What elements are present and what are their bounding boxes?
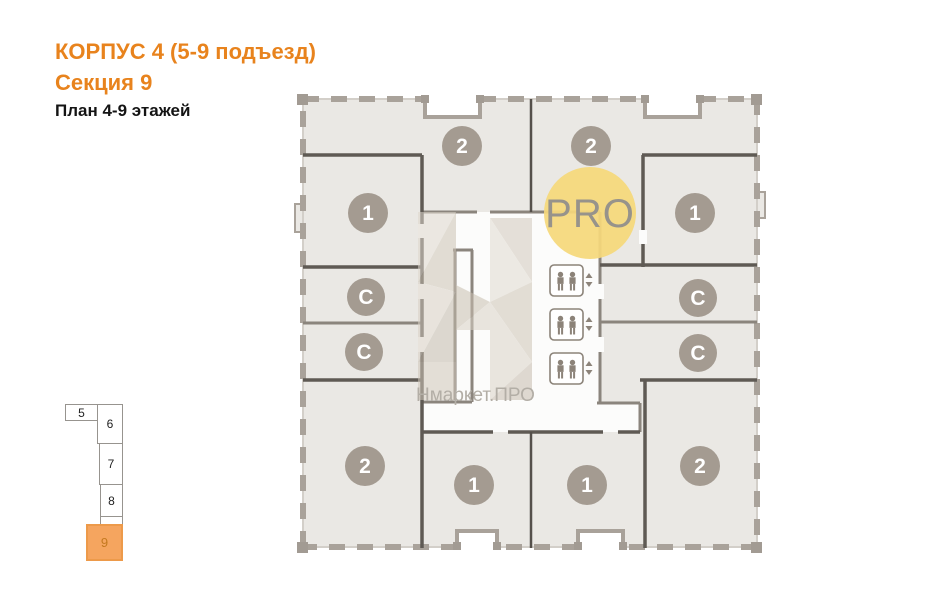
minimap-section-9-active[interactable]: 9 <box>86 524 123 561</box>
svg-text:С: С <box>356 341 371 364</box>
svg-text:2: 2 <box>694 455 706 478</box>
svg-text:С: С <box>690 287 705 310</box>
page: КОРПУС 4 (5-9 подъезд) Секция 9 План 4-9… <box>0 0 941 600</box>
svg-text:PRO: PRO <box>545 192 635 236</box>
minimap-section-7[interactable]: 7 <box>99 443 123 485</box>
unit-label-2-bottom-right[interactable]: 2 <box>680 446 720 486</box>
watermark-text: Нмаркет.ПРО <box>416 385 535 406</box>
svg-text:2: 2 <box>359 455 371 478</box>
unit-label-studio-right-1[interactable]: С <box>679 279 717 317</box>
unit-label-1-bottom-left[interactable]: 1 <box>454 465 494 505</box>
svg-text:1: 1 <box>689 202 701 225</box>
minimap-section-6[interactable]: 6 <box>97 404 123 444</box>
minimap-section-8[interactable]: 8 <box>100 484 123 517</box>
unit-label-studio-left-2[interactable]: С <box>345 333 383 371</box>
svg-text:С: С <box>358 286 373 309</box>
unit-label-studio-left-1[interactable]: С <box>347 278 385 316</box>
unit-label-2-top-left[interactable]: 2 <box>442 126 482 166</box>
svg-text:С: С <box>690 342 705 365</box>
unit-label-2-top-right[interactable]: 2 <box>571 126 611 166</box>
unit-label-1-upper-right[interactable]: 1 <box>675 193 715 233</box>
unit-label-1-upper-left[interactable]: 1 <box>348 193 388 233</box>
minimap-section-5[interactable]: 5 <box>65 404 98 421</box>
svg-text:1: 1 <box>362 202 374 225</box>
unit-label-1-bottom-right[interactable]: 1 <box>567 465 607 505</box>
svg-text:1: 1 <box>468 474 480 497</box>
unit-label-2-bottom-left[interactable]: 2 <box>345 446 385 486</box>
svg-text:2: 2 <box>585 135 597 158</box>
unit-label-studio-right-2[interactable]: С <box>679 334 717 372</box>
floor-plan: 2 2 1 1 С С С С 2 1 1 2 <box>0 0 941 600</box>
svg-text:1: 1 <box>581 474 593 497</box>
svg-text:2: 2 <box>456 135 468 158</box>
pro-logo-badge: PRO <box>544 167 636 259</box>
